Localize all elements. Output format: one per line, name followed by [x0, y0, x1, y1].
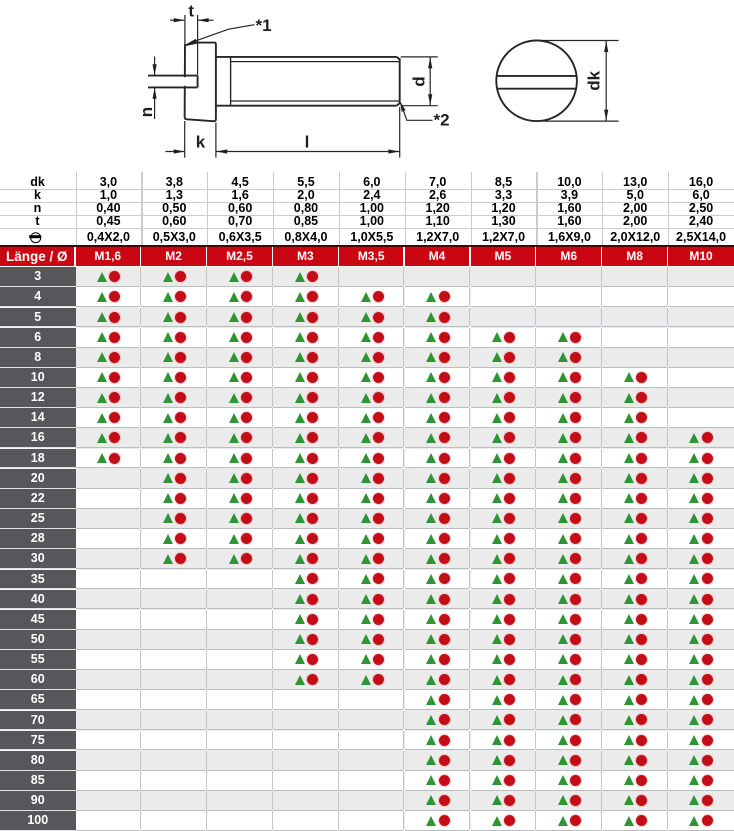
- svg-text:n: n: [137, 107, 156, 117]
- svg-text:dk: dk: [584, 70, 603, 90]
- svg-text:t: t: [188, 2, 194, 21]
- svg-text:k: k: [196, 133, 206, 152]
- svg-text:*2: *2: [434, 111, 450, 130]
- svg-text:d: d: [409, 76, 428, 86]
- svg-text:*1: *1: [256, 16, 272, 35]
- svg-text:l: l: [305, 133, 310, 152]
